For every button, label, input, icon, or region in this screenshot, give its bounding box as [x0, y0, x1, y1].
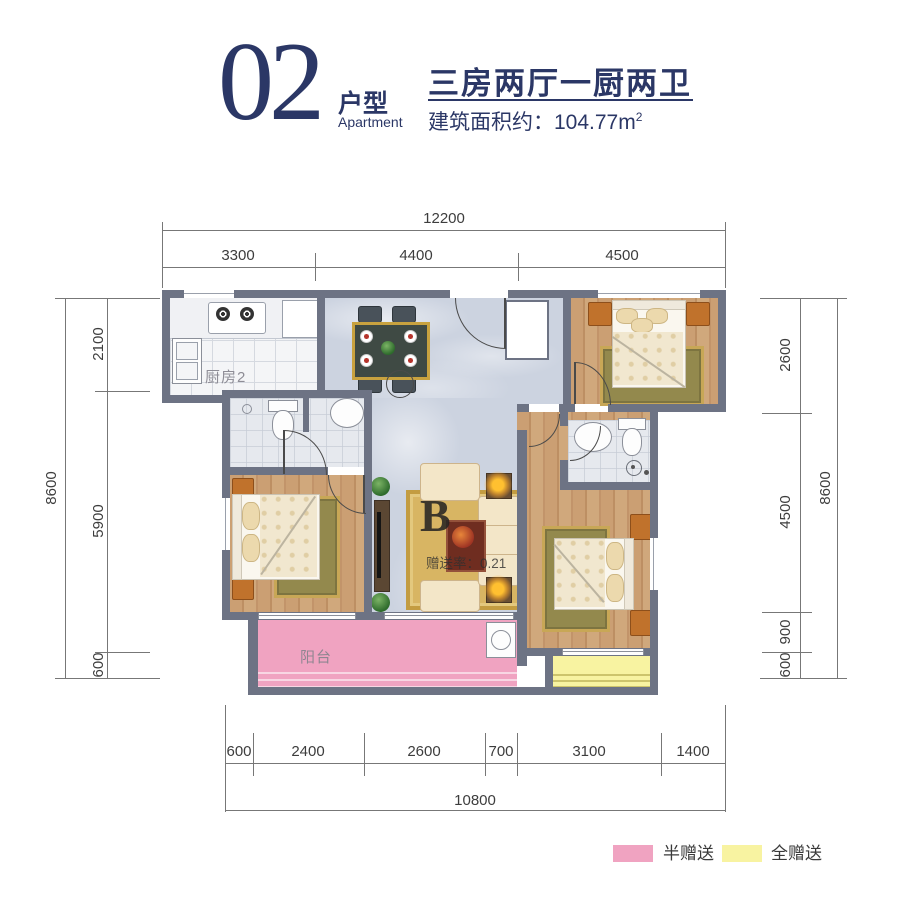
dim-tick: [55, 678, 160, 679]
nightstand: [232, 578, 254, 600]
entry-door-gap: [450, 290, 508, 298]
pillow: [242, 502, 260, 530]
table-plant: [381, 341, 395, 355]
dining-chair: [392, 306, 416, 323]
dim-line-bottom-segments: [225, 763, 726, 764]
dim-tick: [760, 678, 847, 679]
bed-headboard: [232, 494, 242, 580]
bedroom-window-door: [258, 613, 356, 619]
watermark-letter: B: [420, 490, 451, 542]
toilet-bowl: [622, 428, 642, 456]
dim-tick: [518, 253, 519, 281]
wall: [303, 398, 309, 432]
wall: [248, 687, 658, 695]
wall: [517, 620, 527, 666]
wall: [563, 298, 571, 404]
wall: [545, 648, 553, 695]
window: [598, 290, 700, 298]
dim-bottom-seg4: 700: [476, 744, 526, 760]
dim-line-right-total: [837, 298, 838, 678]
flower-centerpiece: [452, 526, 474, 548]
wall: [559, 404, 575, 412]
legend-swatch-half-gift: [613, 845, 653, 862]
dim-tick: [364, 733, 365, 776]
plate: [360, 330, 373, 343]
dim-top-seg1: 3300: [208, 248, 268, 264]
dim-tick: [95, 391, 150, 392]
wall: [317, 298, 325, 398]
dim-top-total: 12200: [414, 211, 474, 227]
wall: [718, 290, 726, 412]
washer-drum: [491, 630, 511, 650]
wall: [560, 412, 568, 426]
dim-bottom-seg2: 2400: [278, 744, 338, 760]
balcony-louvers: [553, 670, 650, 688]
balcony-slider-door: [562, 649, 644, 655]
stove-burner: [216, 307, 230, 321]
area-text: 建筑面积约：104.77m2: [428, 106, 642, 136]
dim-bottom-seg6: 1400: [663, 744, 723, 760]
unit-number: 02: [218, 32, 338, 132]
dim-tick: [661, 733, 662, 776]
wall: [248, 612, 258, 695]
dim-top-seg3: 4500: [592, 248, 652, 264]
unit-label-en: Apartment: [338, 114, 403, 130]
shower-dot: [631, 465, 635, 469]
plant: [371, 593, 390, 612]
sink-basin: [176, 362, 198, 380]
bathroom1-sink: [330, 398, 364, 428]
bathroom1-door-leaf: [283, 430, 285, 474]
floor-drain: [644, 470, 649, 475]
bedroom1-door-leaf: [574, 362, 576, 404]
dim-tick: [762, 413, 812, 414]
area-label: 建筑面积约：104.77m: [428, 111, 636, 134]
dim-top-seg2: 4400: [386, 248, 446, 264]
wall: [162, 395, 230, 403]
nightstand: [686, 302, 710, 326]
bed-headboard: [624, 538, 634, 610]
dim-line-top-total: [162, 230, 726, 231]
area-sup: 2: [636, 110, 643, 124]
entry-door-leaf: [504, 298, 506, 348]
dining-chair: [358, 306, 382, 323]
dim-right-total: 8600: [818, 458, 834, 518]
dim-right-seg1: 2600: [778, 325, 794, 385]
dim-bottom-total: 10800: [445, 793, 505, 809]
window: [184, 290, 234, 298]
headline: 三房两厅一厨两卫: [428, 58, 692, 103]
tv: [377, 512, 381, 578]
dim-line-bottom-total: [225, 810, 726, 811]
pillow: [606, 574, 624, 602]
plant: [371, 477, 390, 496]
plate: [360, 354, 373, 367]
wall: [517, 404, 529, 412]
legend-label-half-gift: 半赠送: [663, 845, 714, 863]
bay-window: [222, 498, 230, 550]
wall: [162, 290, 170, 403]
entry-closet: [505, 300, 549, 360]
dim-bottom-seg3: 2600: [394, 744, 454, 760]
pulled-chair: [386, 370, 414, 398]
dim-line-left-segments: [107, 298, 108, 678]
pillow: [606, 542, 624, 570]
dim-line-right-segments: [800, 298, 801, 678]
dim-line-left-total: [65, 298, 66, 678]
wall: [560, 482, 658, 490]
dim-right-seg2: 4500: [778, 482, 794, 542]
lamp-glow: [484, 471, 512, 499]
dim-bottom-seg1: 600: [214, 744, 264, 760]
plate: [404, 354, 417, 367]
dim-left-seg3: 600: [91, 635, 107, 695]
kitchen-cabinet: [282, 300, 318, 338]
lamp-glow: [484, 575, 512, 603]
wall: [608, 404, 726, 412]
dim-tick: [725, 705, 726, 812]
dim-left-seg2: 5900: [91, 491, 107, 551]
legend-label-full-gift: 全赠送: [771, 845, 822, 863]
dim-bottom-seg5: 3100: [559, 744, 619, 760]
nightstand: [630, 610, 652, 636]
dim-tick: [760, 298, 847, 299]
dim-line-top-segments: [162, 267, 726, 268]
floorplan-page: 02 户型 Apartment 三房两厅一厨两卫 建筑面积约：104.77m2 …: [0, 0, 900, 897]
dim-left-total: 8600: [44, 458, 60, 518]
pillow: [631, 318, 653, 333]
armchair: [420, 580, 480, 612]
headline-rule: [428, 99, 693, 101]
pillow: [242, 534, 260, 562]
kitchen-label: 厨房2: [205, 366, 246, 387]
dim-tick: [55, 298, 160, 299]
balcony-label: 阳台: [300, 646, 332, 667]
dim-right-seg4: 600: [778, 635, 794, 695]
nightstand: [588, 302, 612, 326]
balcony-slider-door: [384, 613, 514, 619]
watermark-ratio: 赠送率：0.21: [426, 552, 506, 572]
legend-swatch-full-gift: [722, 845, 762, 862]
balcony-steps: [258, 670, 517, 688]
dim-tick: [725, 222, 726, 288]
sink-basin: [176, 342, 198, 360]
wall: [222, 390, 372, 398]
window: [650, 538, 658, 590]
dim-tick: [315, 253, 316, 281]
bedroom2-door-leaf: [363, 475, 365, 513]
nightstand: [630, 514, 652, 540]
plate: [404, 330, 417, 343]
floor-drain: [242, 404, 252, 414]
stove-burner: [240, 307, 254, 321]
dim-left-seg1: 2100: [91, 314, 107, 374]
dim-tick: [162, 222, 163, 288]
